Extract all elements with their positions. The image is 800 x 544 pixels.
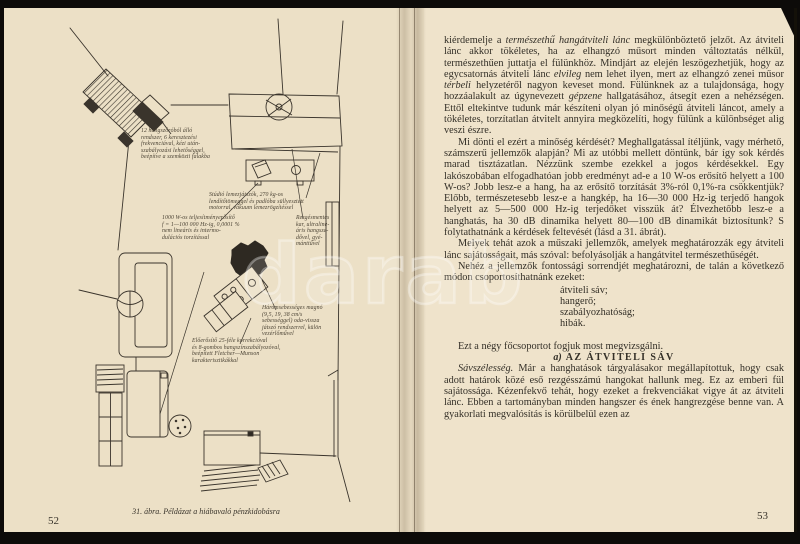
list-item: szabályozhatóság; (560, 307, 784, 318)
label-power-amplifier: 1000 W-os teljesítményerősítő f = 1—100 … (162, 215, 257, 241)
page-gutter (396, 8, 426, 532)
door (328, 370, 350, 502)
list-item: hangerő; (560, 296, 784, 307)
section-heading-label: AZ ÁTVITELI SÁV (566, 352, 675, 363)
armchair (127, 371, 168, 437)
label-studio-turntables: Stúdió lemezjátszók, 270 kg-os lendítőtö… (209, 192, 344, 212)
page-number-right: 53 (757, 510, 768, 522)
label-tonearm: Rezgésmentes kar, ultraline- áris hangsz… (296, 215, 346, 248)
label-speaker-system: 12 hangszóróból álló rendszer, 6 kereszt… (141, 128, 241, 161)
sofa (117, 253, 172, 371)
low-cabinet (204, 431, 260, 465)
feature-list: átviteli sáv;hangerő;szabályozhatóság;hi… (560, 285, 784, 330)
section-heading-prefix: a) (553, 352, 561, 363)
gutter-fold-line (399, 8, 400, 532)
scanned-book-photo: 12 hangszóróból álló rendszer, 6 kereszt… (0, 0, 800, 544)
paragraph: Mi dönti el ezért a minőség kérdését? Me… (444, 137, 784, 239)
paragraph: kiérdemelje a természethű hangátviteli l… (444, 35, 784, 137)
label-preamplifier: Előerősítő 25-féle korrekcióval és 8-gom… (192, 338, 297, 364)
paragraph: Ezt a négy főcsoportot fogjuk most megvi… (444, 341, 784, 352)
round-stool (169, 415, 191, 437)
turntable-console (229, 94, 342, 152)
section-heading: a)AZ ÁTVITELI SÁV (444, 352, 784, 363)
window (96, 365, 124, 466)
paragraph: Melyek tehát azok a műszaki jellemzők, a… (444, 238, 784, 261)
power-amplifier (246, 160, 314, 185)
tape-machine (204, 241, 268, 332)
book-paper: 12 hangszóróból álló rendszer, 6 kereszt… (4, 8, 797, 532)
body-text-column: kiérdemelje a természethű hangátviteli l… (444, 35, 784, 420)
list-item: hibák. (560, 318, 784, 329)
paragraph: Sávszélesség. Már a hanghatások tárgyalá… (444, 363, 784, 419)
gutter-fold-line (414, 8, 415, 532)
figure-31-room-diagram (8, 16, 404, 540)
label-tape-recorder: Háromsebességes magnó (9,5, 19, 38 cm/s … (262, 305, 337, 338)
paragraph: Nehéz a jellemzők fontossági sorrendjét … (444, 261, 784, 284)
page-number-left: 52 (48, 515, 59, 527)
list-item: átviteli sáv; (560, 285, 784, 296)
scan-edge-shadow (794, 8, 797, 532)
figure-caption: 31. ábra. Példázat a hiábavaló pénzkidob… (8, 507, 404, 516)
